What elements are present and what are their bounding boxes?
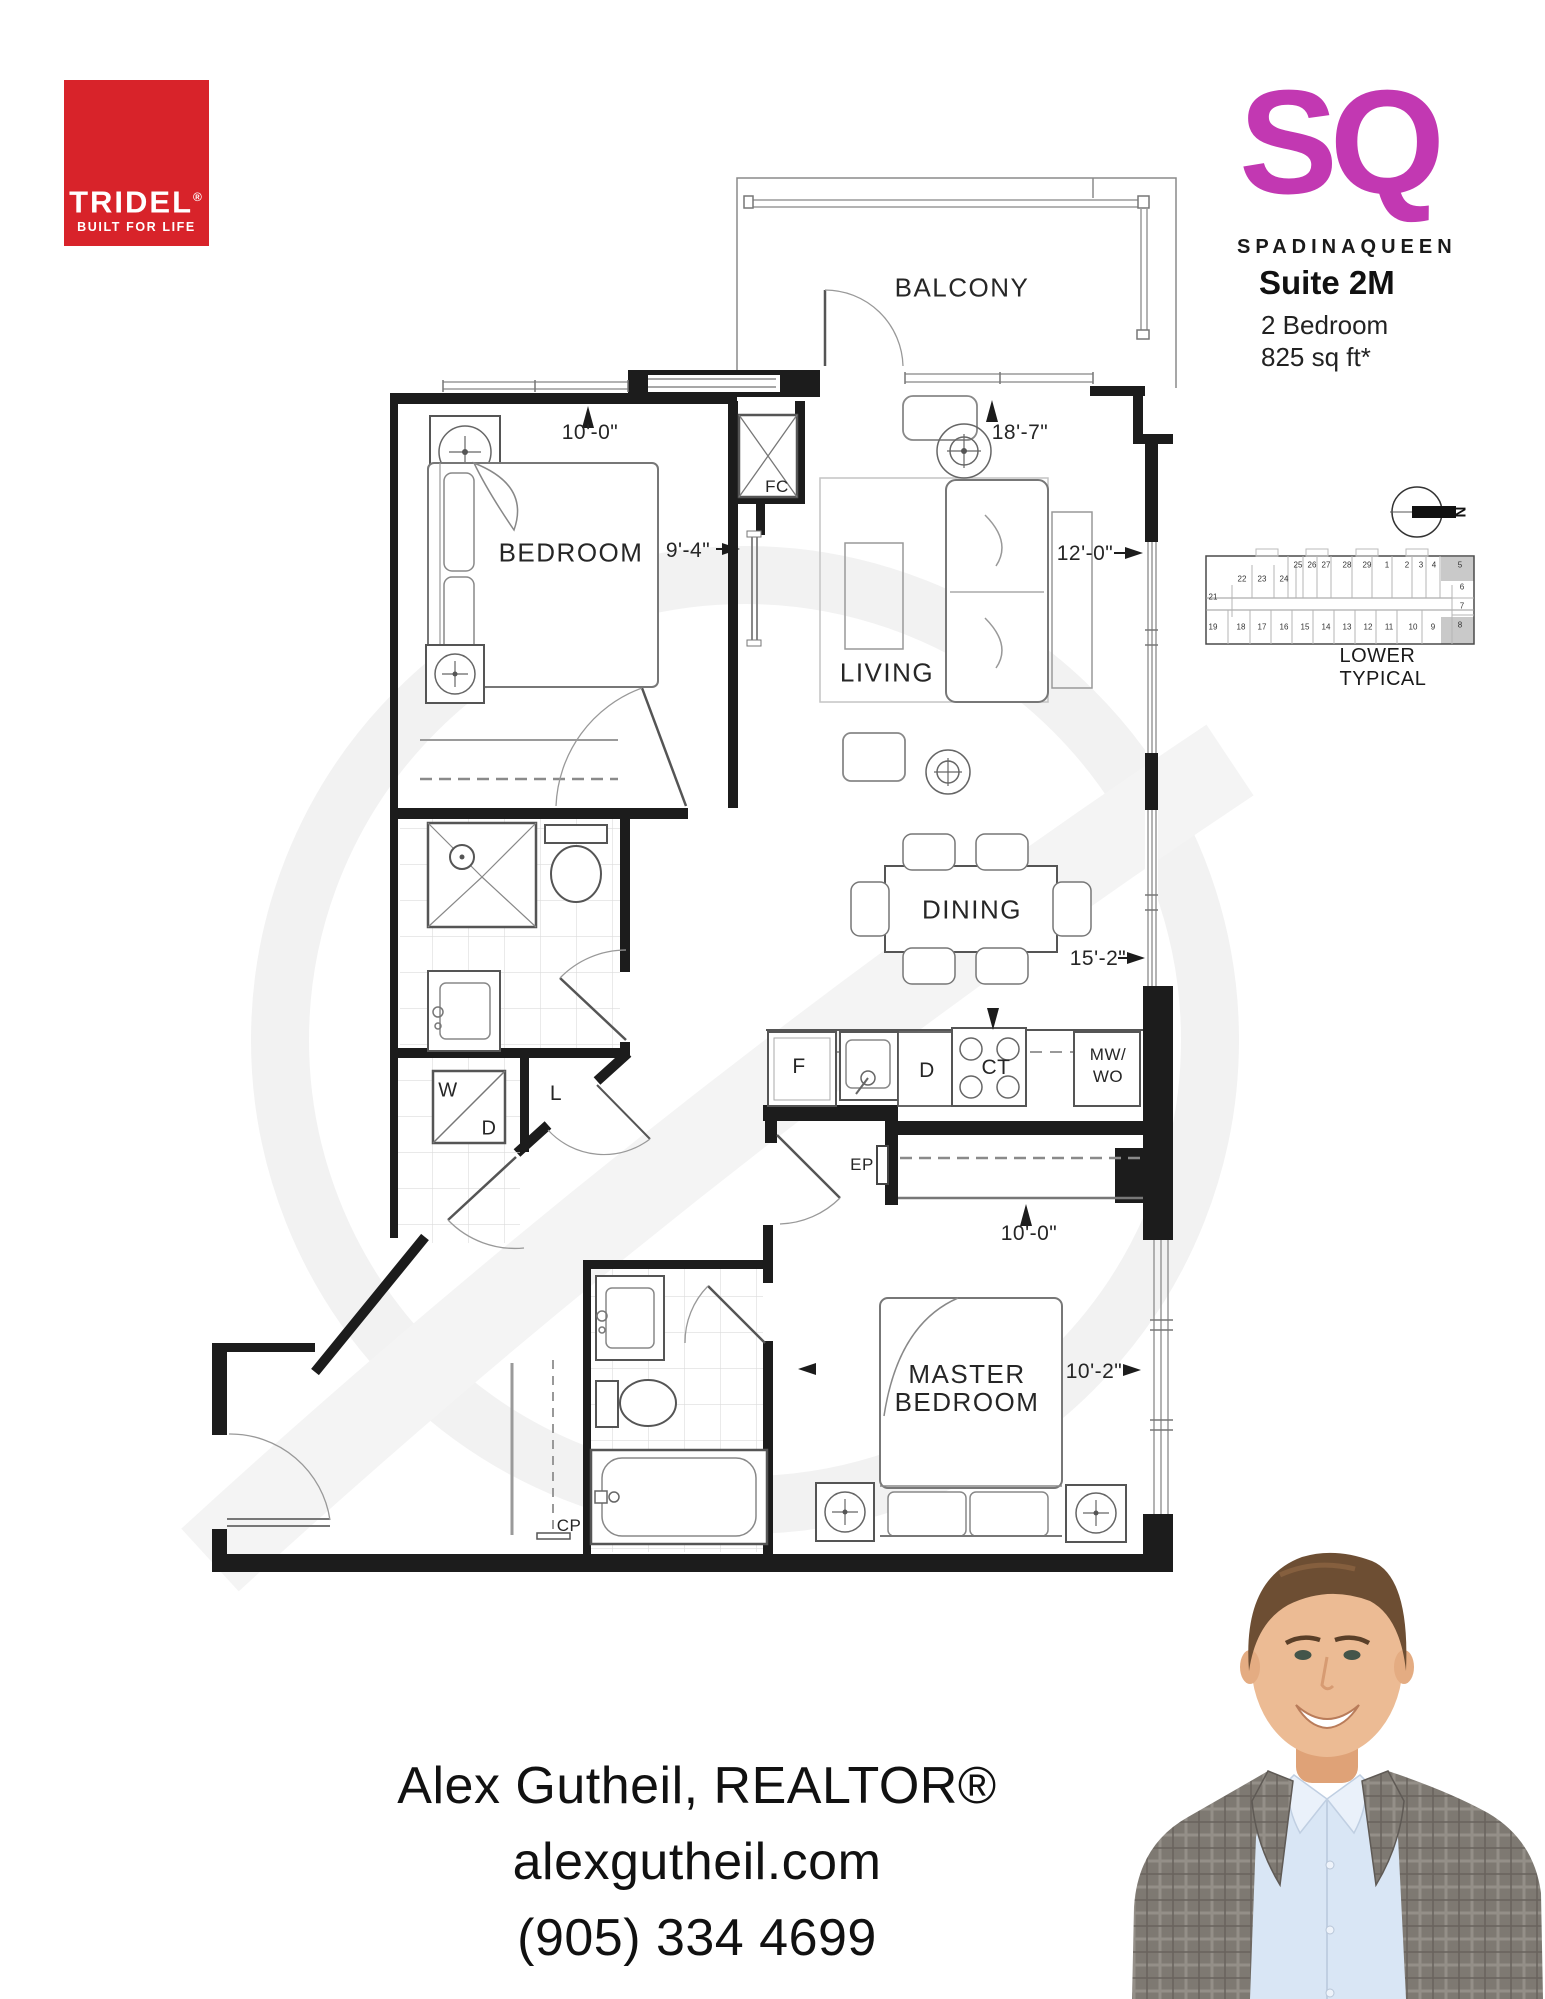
- keyplan-caption: LOWER TYPICAL: [1340, 645, 1477, 691]
- floorplan-flyer: TRIDEL® BUILT FOR LIFE SQ SPADINA QUEEN …: [0, 0, 1545, 1999]
- dishwasher-label: D: [919, 1059, 935, 1083]
- dining-label: DINING: [922, 895, 1022, 926]
- keyplan-unit-23: 23: [1258, 575, 1267, 584]
- keyplan-units: 2526272829123452223242167819181716151413…: [1203, 547, 1483, 651]
- living-label: LIVING: [840, 658, 934, 689]
- dim-master-closet: 10'-0": [1001, 1222, 1058, 1246]
- tridel-logo: TRIDEL® BUILT FOR LIFE: [64, 80, 209, 246]
- microwave-label: MW/ WO: [1090, 1044, 1126, 1088]
- keyplan-unit-25: 25: [1294, 561, 1303, 570]
- keyplan-unit-29: 29: [1363, 561, 1372, 570]
- dim-living-length: 18'-7": [992, 421, 1049, 445]
- dim-bedroom-depth: 9'-4": [666, 539, 710, 563]
- north-arrow-icon: [1390, 487, 1456, 537]
- sq-logo: SQ: [1228, 68, 1448, 218]
- keyplan-unit-7: 7: [1460, 602, 1464, 611]
- keyplan-unit-18: 18: [1237, 623, 1246, 632]
- master-bedroom-label: MASTER BEDROOM: [895, 1360, 1040, 1416]
- keyplan-unit-19: 19: [1209, 623, 1218, 632]
- location-queen: QUEEN: [1361, 236, 1457, 259]
- cp-label: CP: [557, 1516, 582, 1536]
- kitchen-fixtures: [766, 1028, 1143, 1106]
- keyplan-unit-5: 5: [1458, 561, 1462, 570]
- keyplan-unit-11: 11: [1385, 623, 1393, 632]
- dim-living-width: 12'-0": [1057, 542, 1114, 566]
- keyplan-unit-16: 16: [1280, 623, 1289, 632]
- suite-type: 2 Bedroom: [1261, 310, 1388, 341]
- tridel-tagline: BUILT FOR LIFE: [77, 220, 196, 234]
- suite-area: 825 sq ft*: [1261, 342, 1371, 373]
- keyplan-unit-10: 10: [1409, 623, 1418, 632]
- cooktop-label: CT: [982, 1056, 1011, 1080]
- keyplan-unit-17: 17: [1258, 623, 1267, 632]
- bedroom-label: BEDROOM: [499, 538, 644, 569]
- fc-label: FC: [765, 477, 789, 497]
- keyplan-unit-2: 2: [1405, 561, 1409, 570]
- keyplan-unit-26: 26: [1308, 561, 1317, 570]
- washer-label: W: [438, 1080, 457, 1103]
- dim-dining-length: 15'-2": [1070, 947, 1127, 971]
- keyplan-unit-24: 24: [1280, 575, 1289, 584]
- location-spadina: SPADINA: [1237, 236, 1361, 259]
- keyplan-unit-12: 12: [1364, 623, 1373, 632]
- agent-website: alexgutheil.com: [312, 1824, 1082, 1900]
- linen-label: L: [550, 1082, 562, 1106]
- dryer-label: D: [482, 1118, 497, 1141]
- north-label: N: [1452, 507, 1469, 518]
- keyplan-unit-22: 22: [1238, 575, 1247, 584]
- ep-label: EP: [850, 1155, 874, 1175]
- dim-bedroom-width: 10'-0": [562, 421, 619, 445]
- dim-master-width: 10'-2": [1066, 1360, 1123, 1384]
- keyplan-unit-6: 6: [1460, 583, 1464, 592]
- tridel-name: TRIDEL®: [69, 182, 204, 217]
- balcony-label: BALCONY: [895, 273, 1030, 304]
- keyplan-unit-28: 28: [1343, 561, 1352, 570]
- agent-headshot: [1130, 1545, 1545, 1999]
- keyplan-unit-15: 15: [1301, 623, 1310, 632]
- project-location: SPADINA QUEEN: [1237, 236, 1447, 259]
- agent-name: Alex Gutheil, REALTOR®: [312, 1748, 1082, 1824]
- keyplan-unit-4: 4: [1432, 561, 1436, 570]
- keyplan-unit-8: 8: [1458, 621, 1462, 630]
- keyplan-unit-14: 14: [1322, 623, 1331, 632]
- keyplan-unit-1: 1: [1385, 561, 1389, 570]
- keyplan-unit-9: 9: [1431, 623, 1435, 632]
- agent-phone: (905) 334 4699: [312, 1900, 1082, 1976]
- suite-title: Suite 2M: [1259, 264, 1395, 302]
- keyplan-unit-21: 21: [1209, 593, 1218, 602]
- keyplan-unit-13: 13: [1343, 623, 1352, 632]
- fridge-label: F: [792, 1055, 805, 1079]
- keyplan-unit-3: 3: [1419, 561, 1423, 570]
- agent-contact-block: Alex Gutheil, REALTOR® alexgutheil.com (…: [312, 1748, 1082, 1976]
- keyplan-unit-27: 27: [1322, 561, 1331, 570]
